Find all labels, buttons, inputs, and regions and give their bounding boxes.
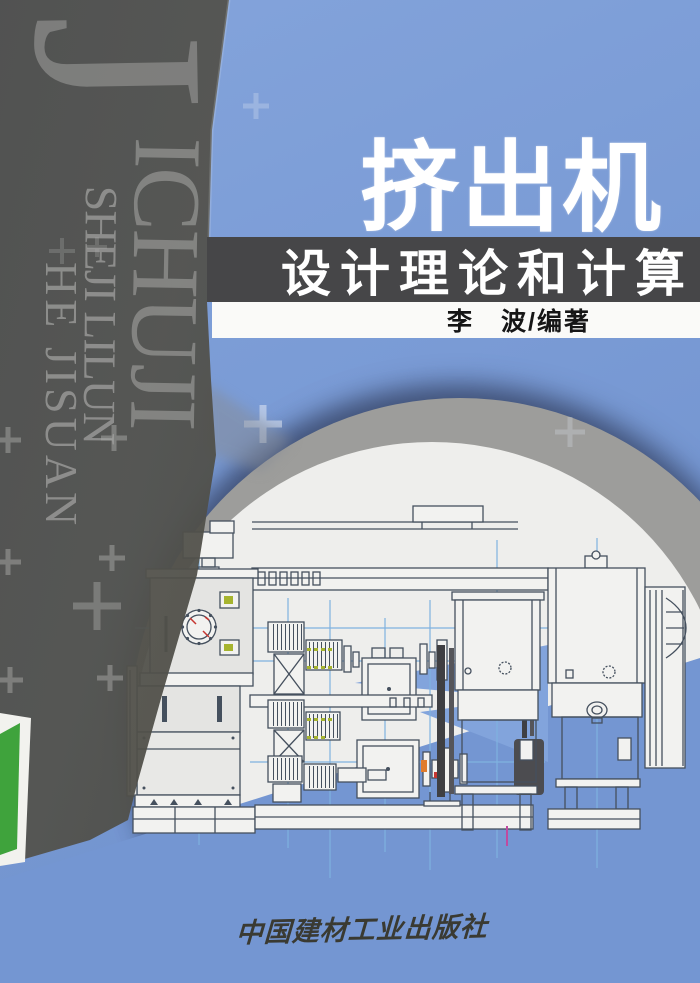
publisher-name: 中国建材工业出版社 (229, 905, 495, 951)
book-cover: J ICHUJI SHEJI LILUN HE JISUAN 设计理论和计算 李… (0, 0, 700, 983)
bookmark-sticker (0, 0, 700, 983)
